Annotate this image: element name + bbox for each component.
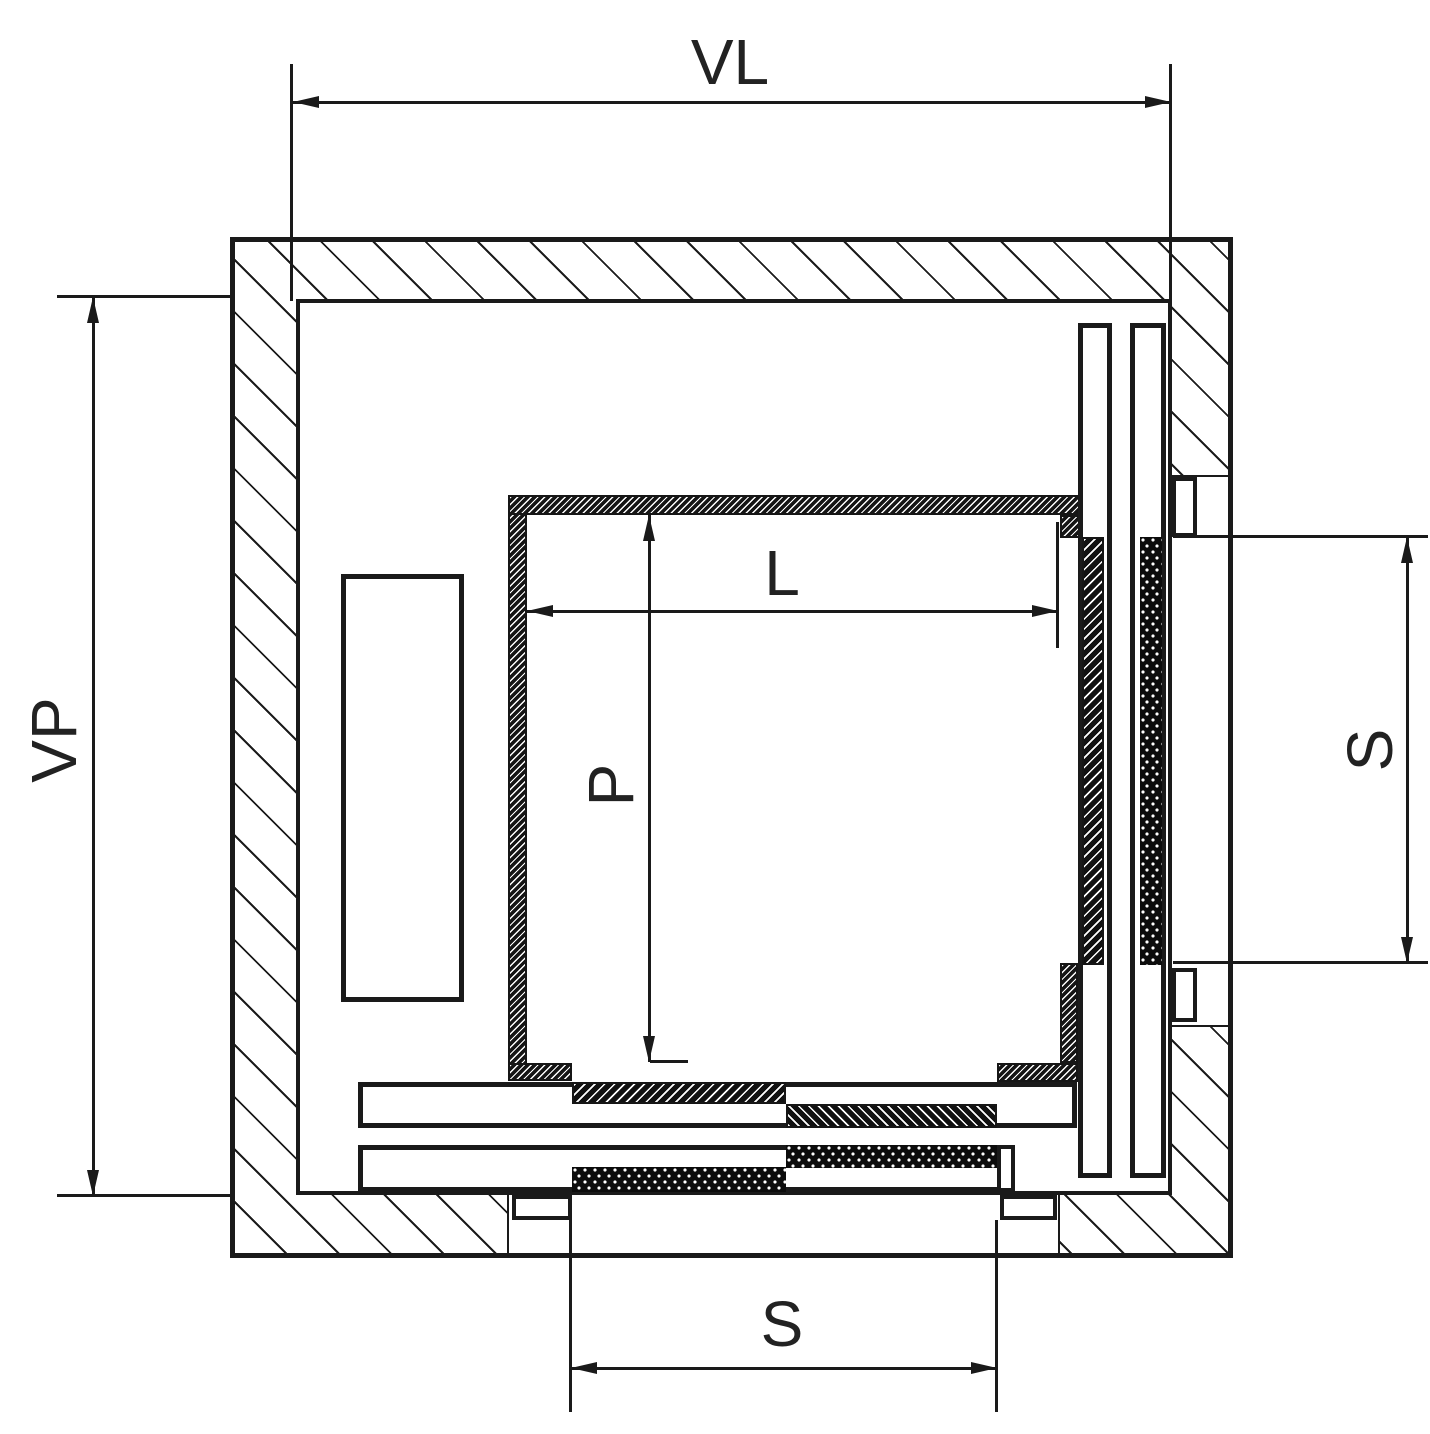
- car-wall-left: [508, 495, 527, 1080]
- p-dimension-line: [648, 515, 651, 1062]
- l-extension-line-right: [1056, 522, 1059, 648]
- s-bottom-arrow-right: [971, 1362, 997, 1374]
- vl-arrow-left: [293, 96, 319, 108]
- p-arrow-top: [643, 515, 655, 541]
- right-landing-door-panel: [1140, 537, 1162, 965]
- right-wall-door-niche: [1172, 477, 1228, 1025]
- p-arrow-bottom: [643, 1036, 655, 1062]
- right-door-jamb-top: [1172, 477, 1197, 537]
- front-landing-track-end-box: [997, 1145, 1015, 1192]
- car-front-wall-left-stub: [508, 1063, 572, 1081]
- vp-extension-line-top: [57, 295, 230, 298]
- s-bottom-arrow-left: [571, 1362, 597, 1374]
- right-niche-bottom-edge: [1172, 1025, 1228, 1027]
- s-right-extension-line-bottom: [1173, 961, 1428, 964]
- vl-arrow-right: [1145, 96, 1171, 108]
- front-landing-door-panel-front: [572, 1167, 786, 1192]
- l-arrow-left: [527, 605, 553, 617]
- front-door-jamb-right: [1000, 1195, 1057, 1220]
- car-wall-right-return-top: [1060, 515, 1080, 538]
- right-car-door-panel: [1082, 537, 1104, 965]
- vl-label: VL: [691, 30, 769, 94]
- car-front-wall-right-stub: [997, 1063, 1078, 1082]
- car-wall-right-lower: [1060, 963, 1078, 1063]
- p-label: P: [579, 764, 643, 807]
- l-label: L: [764, 541, 800, 605]
- s-bottom-extension-line-left: [569, 1220, 572, 1412]
- front-door-jamb-left: [512, 1195, 572, 1220]
- s-bottom-dimension-line: [571, 1367, 997, 1370]
- bottom-niche-right-edge: [1058, 1195, 1060, 1253]
- front-car-door-panel-rear: [572, 1082, 786, 1104]
- front-landing-door-panel-rear: [786, 1145, 997, 1168]
- s-bottom-extension-line-right: [995, 1220, 998, 1412]
- bottom-niche-left-edge: [507, 1195, 509, 1253]
- l-dimension-line: [527, 610, 1058, 613]
- s-right-label: S: [1338, 729, 1402, 772]
- bottom-wall-door-niche: [507, 1195, 1060, 1253]
- s-right-arrow-top: [1401, 537, 1413, 563]
- p-extension-line-bottom: [650, 1060, 688, 1063]
- s-bottom-label: S: [761, 1292, 804, 1356]
- vp-label: VP: [22, 697, 86, 782]
- technical-drawing-canvas: VL VP L P S S: [0, 0, 1430, 1434]
- s-right-arrow-bottom: [1401, 937, 1413, 963]
- right-door-jamb-bottom: [1172, 968, 1197, 1022]
- vp-dimension-line: [92, 297, 95, 1196]
- vp-arrow-bottom: [87, 1170, 99, 1196]
- s-right-dimension-line: [1406, 537, 1409, 963]
- car-wall-rear: [508, 495, 1080, 515]
- counterweight-frame: [341, 574, 464, 1002]
- l-arrow-right: [1032, 605, 1058, 617]
- s-right-extension-line-top: [1173, 535, 1428, 538]
- front-car-door-panel-front: [786, 1104, 997, 1128]
- vp-arrow-top: [87, 297, 99, 323]
- vp-extension-line-bottom: [57, 1194, 230, 1197]
- vl-dimension-line: [293, 101, 1171, 104]
